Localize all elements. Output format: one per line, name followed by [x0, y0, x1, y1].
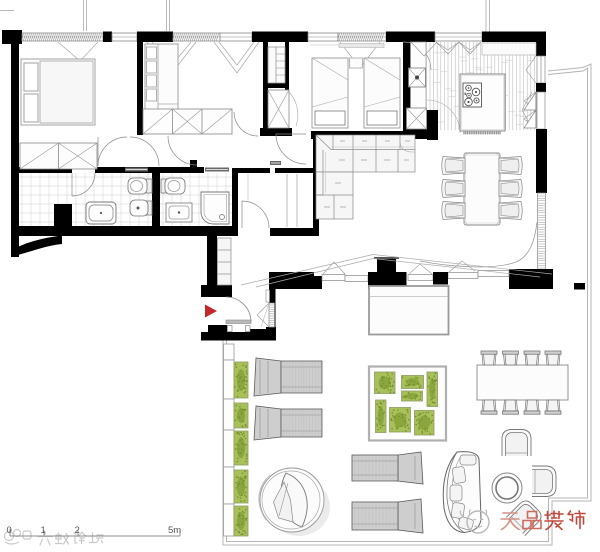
svg-text:5m: 5m	[168, 525, 181, 536]
svg-text:0: 0	[7, 525, 12, 536]
svg-text:1: 1	[41, 525, 46, 536]
svg-text:2: 2	[75, 525, 80, 536]
